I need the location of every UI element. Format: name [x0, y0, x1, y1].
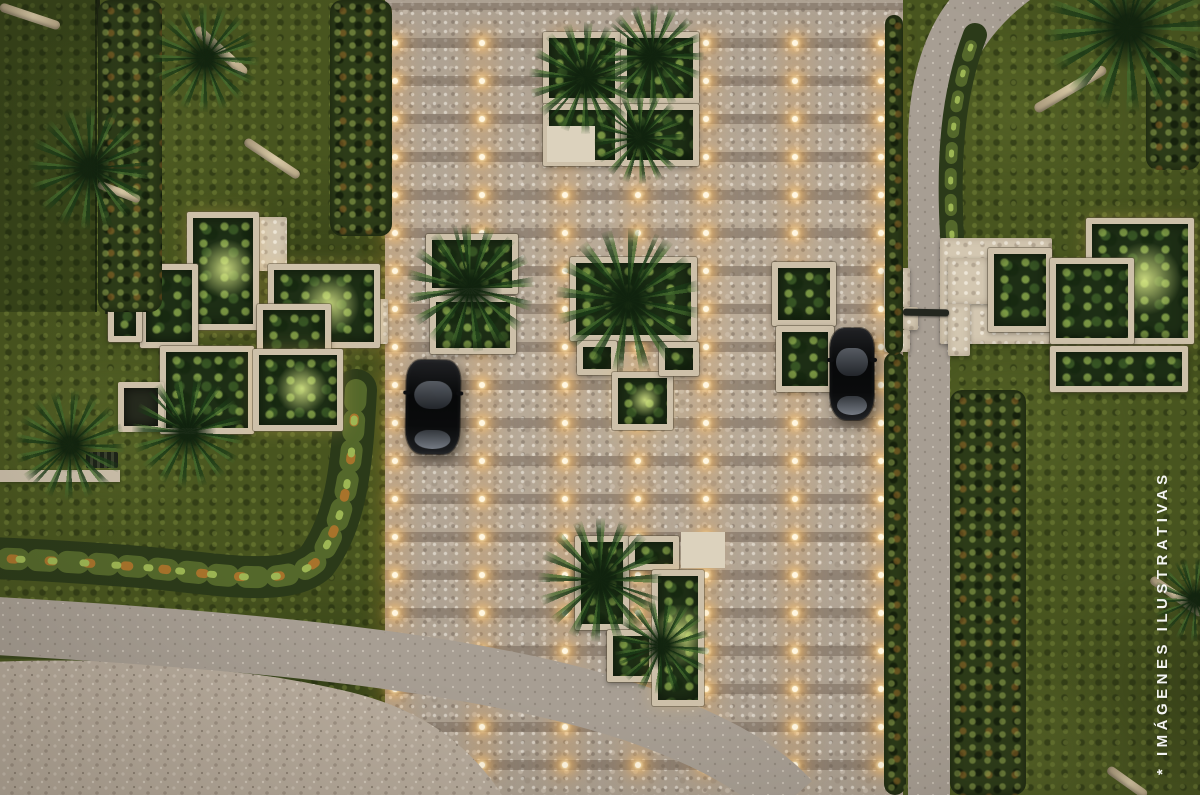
parked-car — [830, 328, 874, 420]
car-mirror-left — [827, 358, 834, 362]
car-mirror-right — [870, 358, 877, 362]
watermark-text: * IMÁGENES ILUSTRATIVAS — [1154, 415, 1171, 775]
parked-car — [405, 360, 461, 455]
car-mirror-left — [403, 390, 410, 394]
car-mirror-right — [456, 391, 463, 395]
vehicles-layer — [0, 0, 1200, 795]
gate-barrier-arm — [903, 309, 949, 317]
aerial-render: * IMÁGENES ILUSTRATIVAS — [0, 0, 1200, 795]
car-roof-glass — [414, 380, 453, 409]
car-roof-glass — [836, 348, 868, 376]
